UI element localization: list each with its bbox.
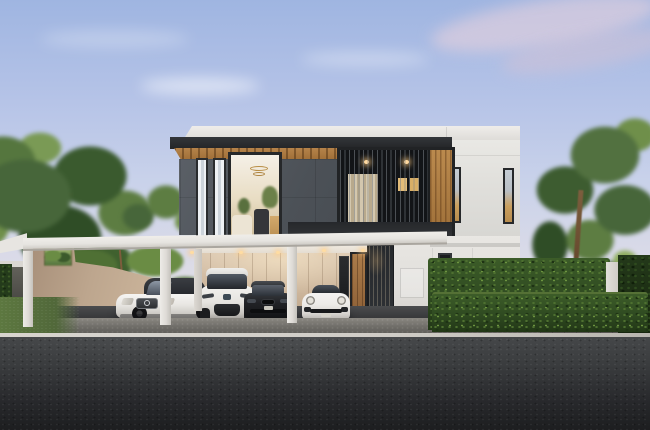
brand-emblem [223, 294, 231, 300]
house-exterior-rendering [0, 0, 650, 430]
white-volume-seam [447, 155, 520, 156]
carport-post [160, 240, 171, 325]
car-windshield [252, 285, 284, 296]
narrow-window [503, 168, 514, 224]
car-grille [261, 299, 275, 305]
carport-rear-post [194, 249, 202, 311]
chandelier-ring [250, 166, 268, 171]
curtain-pane [196, 158, 208, 240]
asphalt-road [0, 337, 650, 430]
cloud [140, 78, 260, 94]
downlight [239, 251, 243, 254]
lawn-strip [0, 297, 80, 333]
front-door [350, 252, 367, 314]
hedge-low-front [432, 292, 648, 332]
downlight [361, 249, 365, 252]
cloud [40, 30, 190, 48]
indoor-plant [262, 186, 278, 208]
car-headlight [337, 296, 346, 305]
carport-post [287, 238, 297, 323]
car-headlight [306, 296, 315, 305]
carport-post [23, 243, 33, 327]
wall-panel [400, 268, 424, 298]
white-sports-car [302, 285, 350, 321]
car-windshield [207, 274, 247, 289]
downlight [276, 251, 280, 254]
indoor-plant [238, 198, 250, 214]
car-headlight [247, 299, 256, 303]
license-plate [321, 313, 331, 317]
curtain-pane [213, 158, 226, 240]
cloud [300, 52, 430, 66]
black-sedan-car [244, 281, 292, 320]
brand-emblem [144, 300, 150, 306]
license-plate [264, 306, 273, 310]
car-grille [214, 304, 240, 316]
car-vent [341, 307, 348, 312]
chandelier-ring [253, 172, 265, 176]
downlight [322, 249, 326, 252]
